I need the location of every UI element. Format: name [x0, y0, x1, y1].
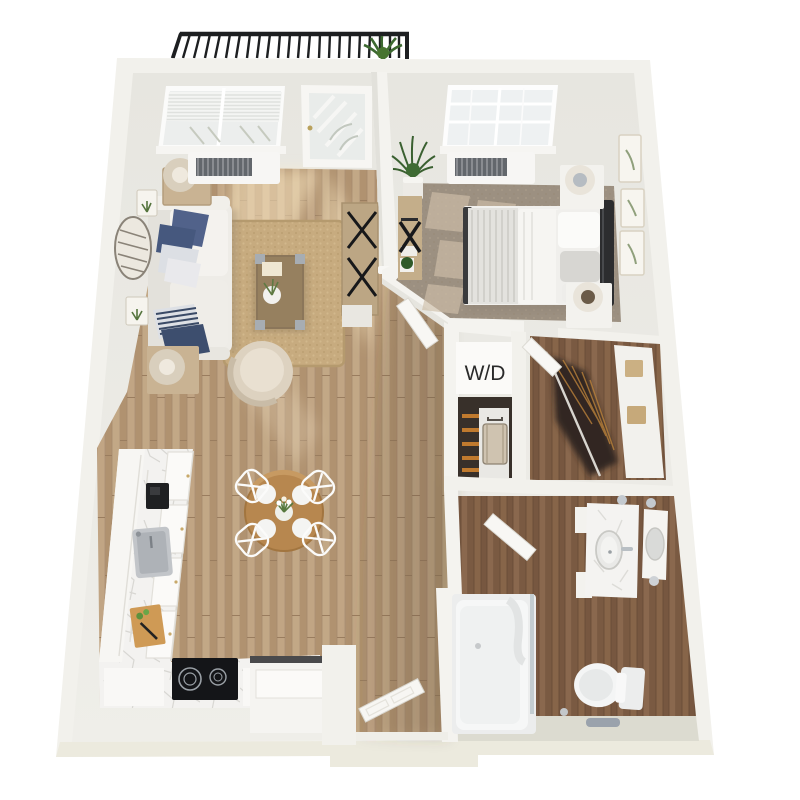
- svg-text:W/D: W/D: [465, 362, 506, 385]
